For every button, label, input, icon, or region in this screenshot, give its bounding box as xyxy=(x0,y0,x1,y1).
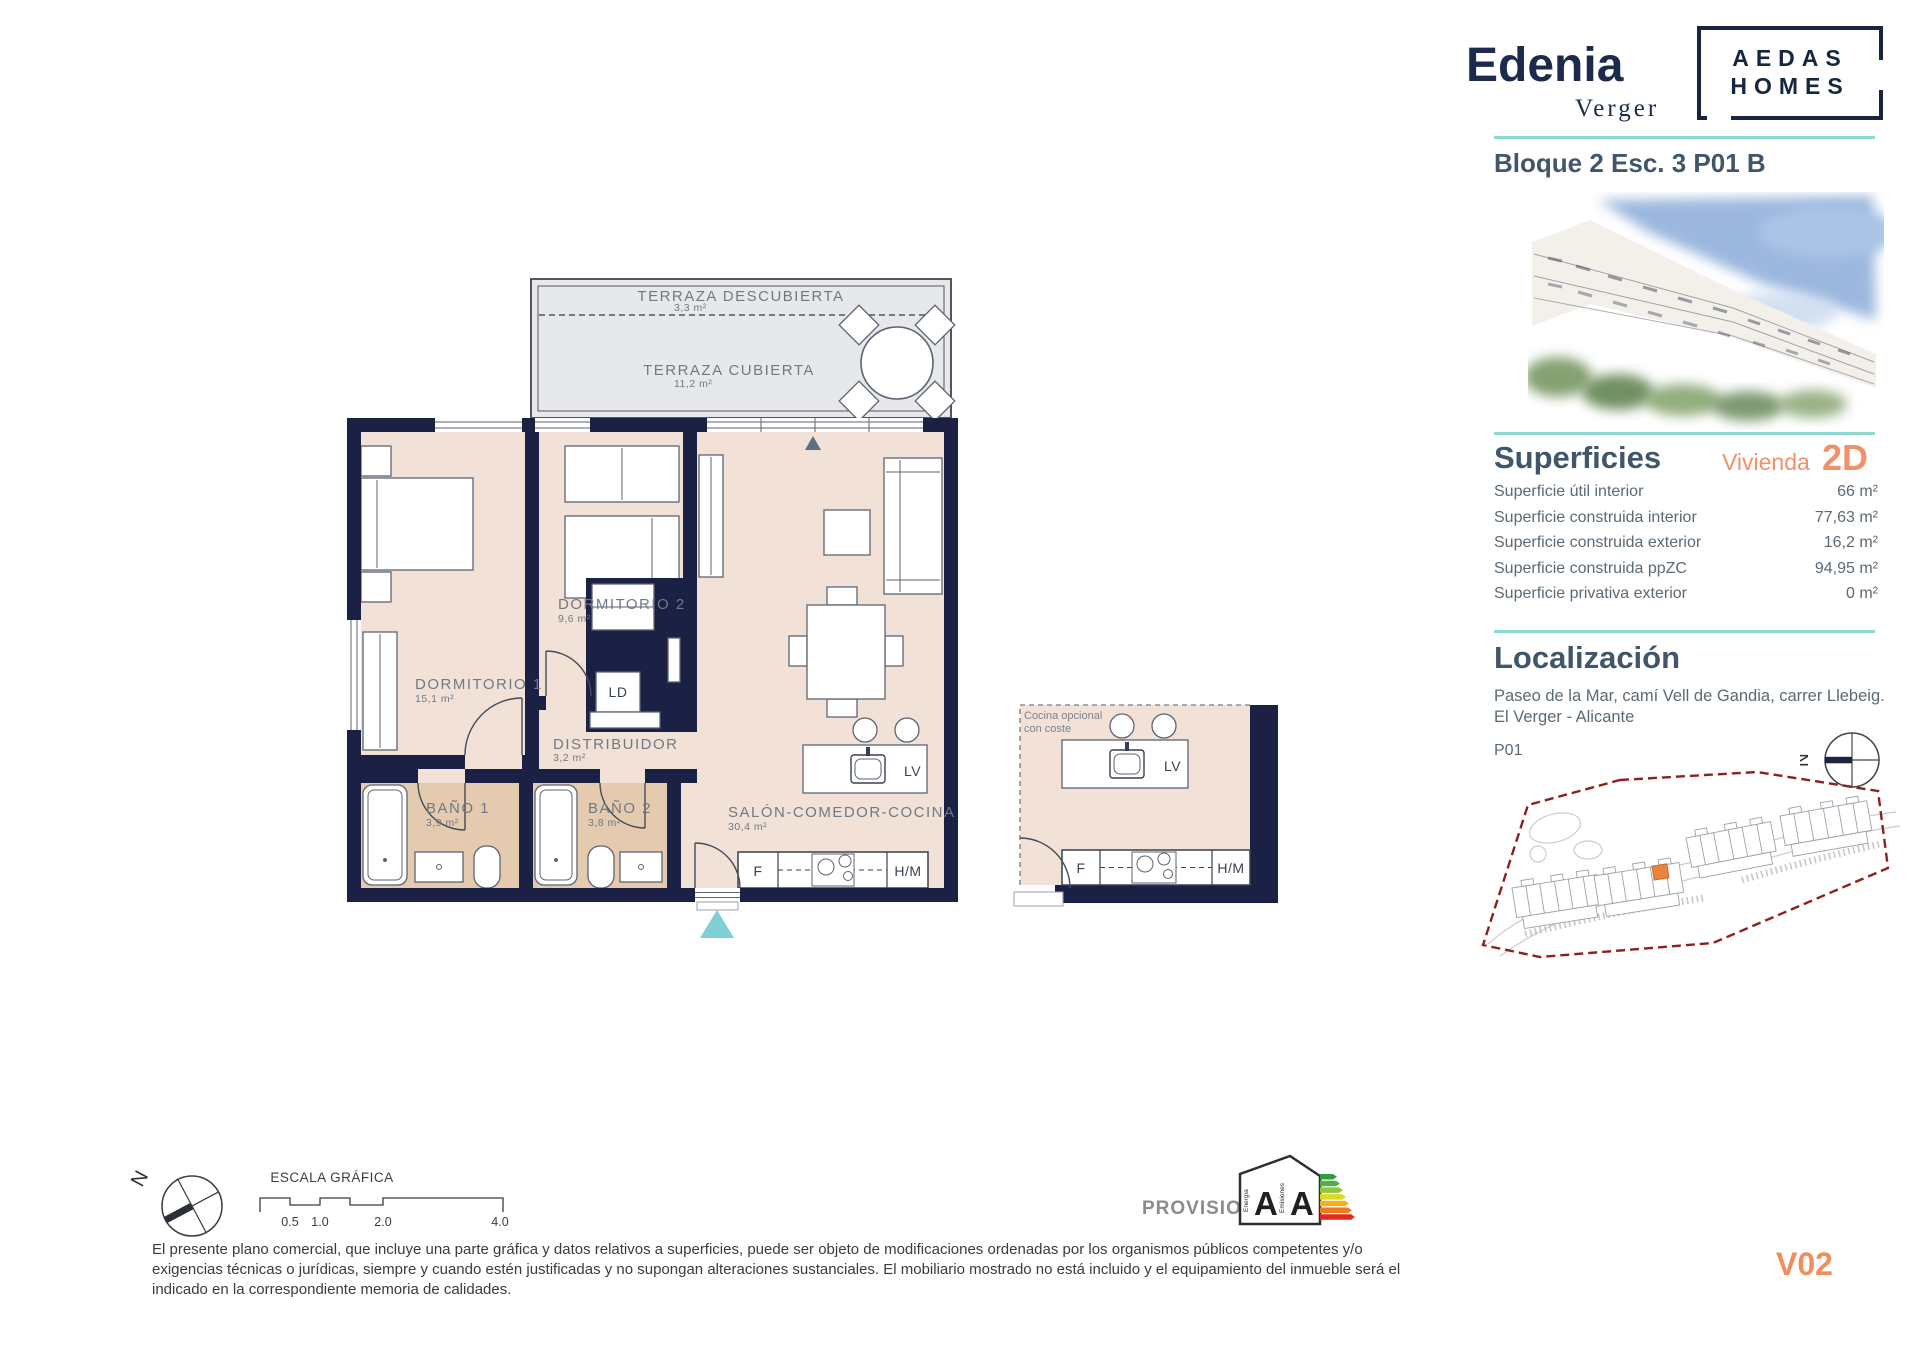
room-label-bano-1: BAÑO 1 xyxy=(426,800,490,817)
highlighted-unit xyxy=(1652,864,1669,880)
chair xyxy=(885,636,903,666)
room-area-distribuidor: 3,2 m² xyxy=(553,752,586,764)
room-label-dormitorio-2: DORMITORIO 2 xyxy=(558,596,686,613)
room-area-bano-1: 3,9 m² xyxy=(426,817,459,829)
glass-door-terrace xyxy=(707,418,923,432)
window-dorm1-left xyxy=(347,620,361,730)
optional-kitchen-note: Cocina opcional xyxy=(1024,710,1102,722)
energy-scale-bars xyxy=(1320,1174,1355,1220)
teal-rule xyxy=(1494,136,1875,139)
table-row: Superficie construida exterior 16,2 m² xyxy=(1494,534,1878,560)
superficie-label: Superficie útil interior xyxy=(1494,483,1643,509)
building-rendering xyxy=(1528,192,1884,430)
oven-micro-label: H/M xyxy=(894,863,921,879)
table-row: Superficie útil interior 66 m² xyxy=(1494,483,1878,509)
superficie-value: 66 m² xyxy=(1837,483,1878,509)
shelf xyxy=(590,712,660,728)
compass-n-letter: N xyxy=(130,1167,153,1190)
superficies-table: Superficie útil interior 66 m² Superfici… xyxy=(1494,483,1878,611)
room-label-terraza-descubierta: TERRAZA DESCUBIERTA xyxy=(637,288,844,305)
chair xyxy=(827,587,857,605)
nightstand xyxy=(361,572,391,602)
scale-tick: 2.0 xyxy=(374,1215,391,1229)
laundry-label: LD xyxy=(609,684,628,700)
unit-title: Bloque 2 Esc. 3 P01 B xyxy=(1494,148,1766,179)
room-area-bano-2: 3,8 m² xyxy=(588,817,621,829)
optional-kitchen: LV F H/M Cocina opcional con coste xyxy=(1014,705,1278,906)
room-area-salon: 30,4 m² xyxy=(728,821,767,833)
room-area-terraza-cubierta: 11,2 m² xyxy=(674,378,712,390)
emissions-label: Emisiones xyxy=(1279,1182,1286,1213)
side-table xyxy=(824,510,870,555)
table-row: Superficie construida ppZC 94,95 m² xyxy=(1494,560,1878,586)
bathtub xyxy=(535,785,577,885)
table-row: Superficie privativa exterior 0 m² xyxy=(1494,585,1878,611)
terrace: TERRAZA DESCUBIERTA 3,3 m² TERRAZA CUBIE… xyxy=(531,279,955,421)
oven-micro-label: H/M xyxy=(1217,860,1244,876)
toilet xyxy=(474,846,500,888)
dorm2-furniture xyxy=(565,446,679,598)
scale-tick: 0.5 xyxy=(281,1215,298,1229)
room-label-bano-2: BAÑO 2 xyxy=(588,800,652,817)
nightstand xyxy=(361,446,391,476)
developer-logo-line2: HOMES xyxy=(1701,72,1879,100)
room-label-salon: SALÓN-COMEDOR-COCINA xyxy=(728,804,956,821)
window-dorm2 xyxy=(535,418,590,432)
table-row: Superficie construida interior 77,63 m² xyxy=(1494,509,1878,535)
project-logo-sub: Verger xyxy=(1575,95,1659,123)
entry-arrow-marker xyxy=(700,910,734,938)
graphic-scale: ESCALA GRÁFICA 0.5 1.0 2.0 4.0 xyxy=(250,1168,530,1238)
chair xyxy=(789,636,807,666)
fridge-label: F xyxy=(753,863,762,879)
stool xyxy=(1152,714,1176,738)
vivienda-code: 2D xyxy=(1822,437,1868,479)
pool-outline xyxy=(1526,808,1583,849)
superficie-value: 77,63 m² xyxy=(1815,509,1878,535)
plan-sheet: TERRAZA DESCUBIERTA 3,3 m² TERRAZA CUBIE… xyxy=(0,0,1920,1357)
stool xyxy=(853,718,877,742)
superficie-label: Superficie construida exterior xyxy=(1494,534,1701,560)
room-area-terraza-descubierta: 3,3 m² xyxy=(674,302,707,314)
washbasin xyxy=(620,852,662,882)
project-logo: Edenia xyxy=(1466,38,1623,93)
sofa xyxy=(884,458,942,594)
scale-title: ESCALA GRÁFICA xyxy=(270,1170,393,1185)
vivienda-label: Vivienda xyxy=(1722,449,1810,476)
building-cluster xyxy=(1511,795,1874,930)
site-plan-map xyxy=(1480,748,1910,993)
scale-bar xyxy=(260,1198,503,1212)
dishwasher-label: LV xyxy=(904,763,921,779)
washbasin xyxy=(415,852,463,882)
legal-disclaimer: El presente plano comercial, que incluye… xyxy=(152,1240,1414,1300)
emissions-letter: A xyxy=(1290,1185,1314,1222)
shelf-narrow xyxy=(668,638,680,682)
threshold xyxy=(1014,892,1063,906)
localizacion-title: Localización xyxy=(1494,640,1680,676)
teal-rule xyxy=(1494,630,1875,633)
energy-label: Energía xyxy=(1243,1189,1250,1212)
developer-logo: AEDAS HOMES xyxy=(1697,26,1883,120)
superficie-value: 16,2 m² xyxy=(1824,534,1878,560)
dishwasher-label: LV xyxy=(1164,758,1181,774)
floor-plan: TERRAZA DESCUBIERTA 3,3 m² TERRAZA CUBIE… xyxy=(300,260,1300,940)
bed-double xyxy=(361,478,473,570)
room-area-dormitorio-2: 9,6 m² xyxy=(558,613,591,625)
toilet xyxy=(588,846,614,888)
version-label: V02 xyxy=(1776,1246,1833,1283)
optional-kitchen-note: con coste xyxy=(1024,723,1071,735)
window-dorm1 xyxy=(435,418,522,432)
superficie-label: Superficie construida ppZC xyxy=(1494,560,1687,586)
superficie-label: Superficie construida interior xyxy=(1494,509,1697,535)
stool xyxy=(1110,714,1134,738)
garden-outline xyxy=(1574,841,1602,859)
entry-step xyxy=(697,902,738,910)
room-label-distribuidor: DISTRIBUIDOR xyxy=(553,736,679,753)
superficie-value: 94,95 m² xyxy=(1815,560,1878,586)
scale-tick: 1.0 xyxy=(311,1215,328,1229)
room-area-dormitorio-1: 15,1 m² xyxy=(415,693,454,705)
compass-north-bar xyxy=(164,1203,194,1223)
dining-table xyxy=(807,605,885,699)
faucet xyxy=(1125,742,1129,751)
garden-outline xyxy=(1530,846,1546,862)
superficie-value: 0 m² xyxy=(1846,585,1878,611)
fridge-label: F xyxy=(1076,860,1085,876)
developer-logo-line1: AEDAS xyxy=(1701,44,1879,72)
bathtub xyxy=(363,785,407,885)
faucet xyxy=(866,747,870,756)
stool xyxy=(895,718,919,742)
compass-icon: N xyxy=(130,1158,246,1250)
room-label-terraza-cubierta: TERRAZA CUBIERTA xyxy=(643,362,815,379)
room-label-dormitorio-1: DORMITORIO 1 xyxy=(415,676,543,693)
superficies-title: Superficies xyxy=(1494,440,1661,476)
scale-tick: 4.0 xyxy=(491,1215,508,1229)
energy-letter: A xyxy=(1254,1185,1278,1222)
teal-rule xyxy=(1494,432,1875,435)
energy-rating-icon: Energía A Emisiones A xyxy=(1232,1152,1362,1234)
superficie-label: Superficie privativa exterior xyxy=(1494,585,1687,611)
chair xyxy=(827,699,857,717)
entry-threshold xyxy=(695,888,740,902)
